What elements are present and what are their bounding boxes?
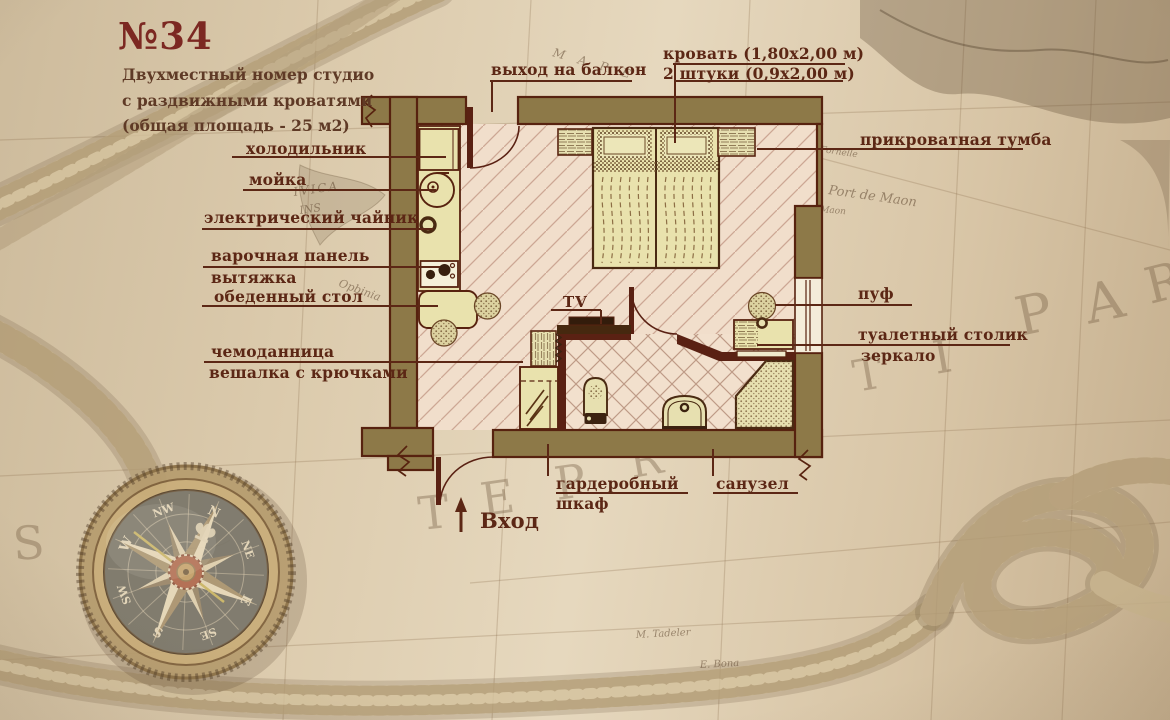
callout-hob: варочная панель — [211, 247, 370, 265]
tv-set — [569, 317, 614, 325]
bed-headband — [593, 161, 719, 172]
nightstand — [718, 128, 755, 156]
toilet — [584, 378, 607, 424]
callout-sink: мойка — [249, 171, 307, 189]
pillow — [663, 133, 711, 159]
callout-bed-size: кровать (1,80х2,00 м) — [663, 45, 845, 63]
callout-luggage: чемоданница — [211, 343, 334, 361]
callout-entrance: Вход — [480, 509, 539, 533]
cooktop — [421, 261, 459, 287]
room-description-line: Двухместный номер студио — [122, 62, 374, 88]
room-description-line: (общая площадь - 25 м2) — [122, 113, 374, 139]
callout-vanity: туалетный столик — [858, 326, 1028, 344]
callout-mirror: зеркало — [861, 347, 936, 365]
room-description-line: с раздвижными кроватями — [122, 88, 374, 114]
callout-dining-table: обеденный стол — [214, 288, 363, 306]
dining-chair — [431, 320, 457, 346]
callout-hooks: вешалка с крючками — [209, 364, 408, 382]
room-description: Двухместный номер студио с раздвижными к… — [122, 62, 374, 139]
callout-wardrobe-2: шкаф — [556, 495, 609, 513]
hook-rack — [531, 331, 561, 366]
callout-bathroom: санузел — [716, 475, 789, 493]
entrance-arrow-icon — [455, 497, 467, 532]
entrance-door — [436, 457, 493, 505]
callout-pouf: пуф — [858, 285, 894, 303]
mirror — [737, 351, 786, 357]
wardrobe — [520, 367, 558, 429]
callout-nightstand: прикроватная тумба — [860, 131, 1052, 149]
page-title: №34 — [118, 14, 213, 58]
callout-wardrobe: гардеробный — [556, 475, 679, 493]
callout-hood: вытяжка — [211, 269, 297, 287]
window — [795, 278, 822, 353]
callout-balcony-exit: выход на балкон — [491, 61, 647, 79]
poster: S Т Е Р R Т І Р А R M A R E Port de Maon… — [0, 0, 1170, 720]
bathroom-sink — [662, 396, 707, 428]
pillow — [600, 133, 650, 159]
callout-tv: TV — [563, 294, 588, 311]
beds — [593, 128, 719, 268]
nightstand — [558, 129, 592, 155]
callout-fridge: холодильник — [246, 140, 366, 158]
callout-bed-qty: 2 штуки (0,9х2,00 м) — [663, 65, 845, 83]
callout-kettle: электрический чайник — [204, 209, 419, 227]
dining-chair — [475, 293, 501, 319]
